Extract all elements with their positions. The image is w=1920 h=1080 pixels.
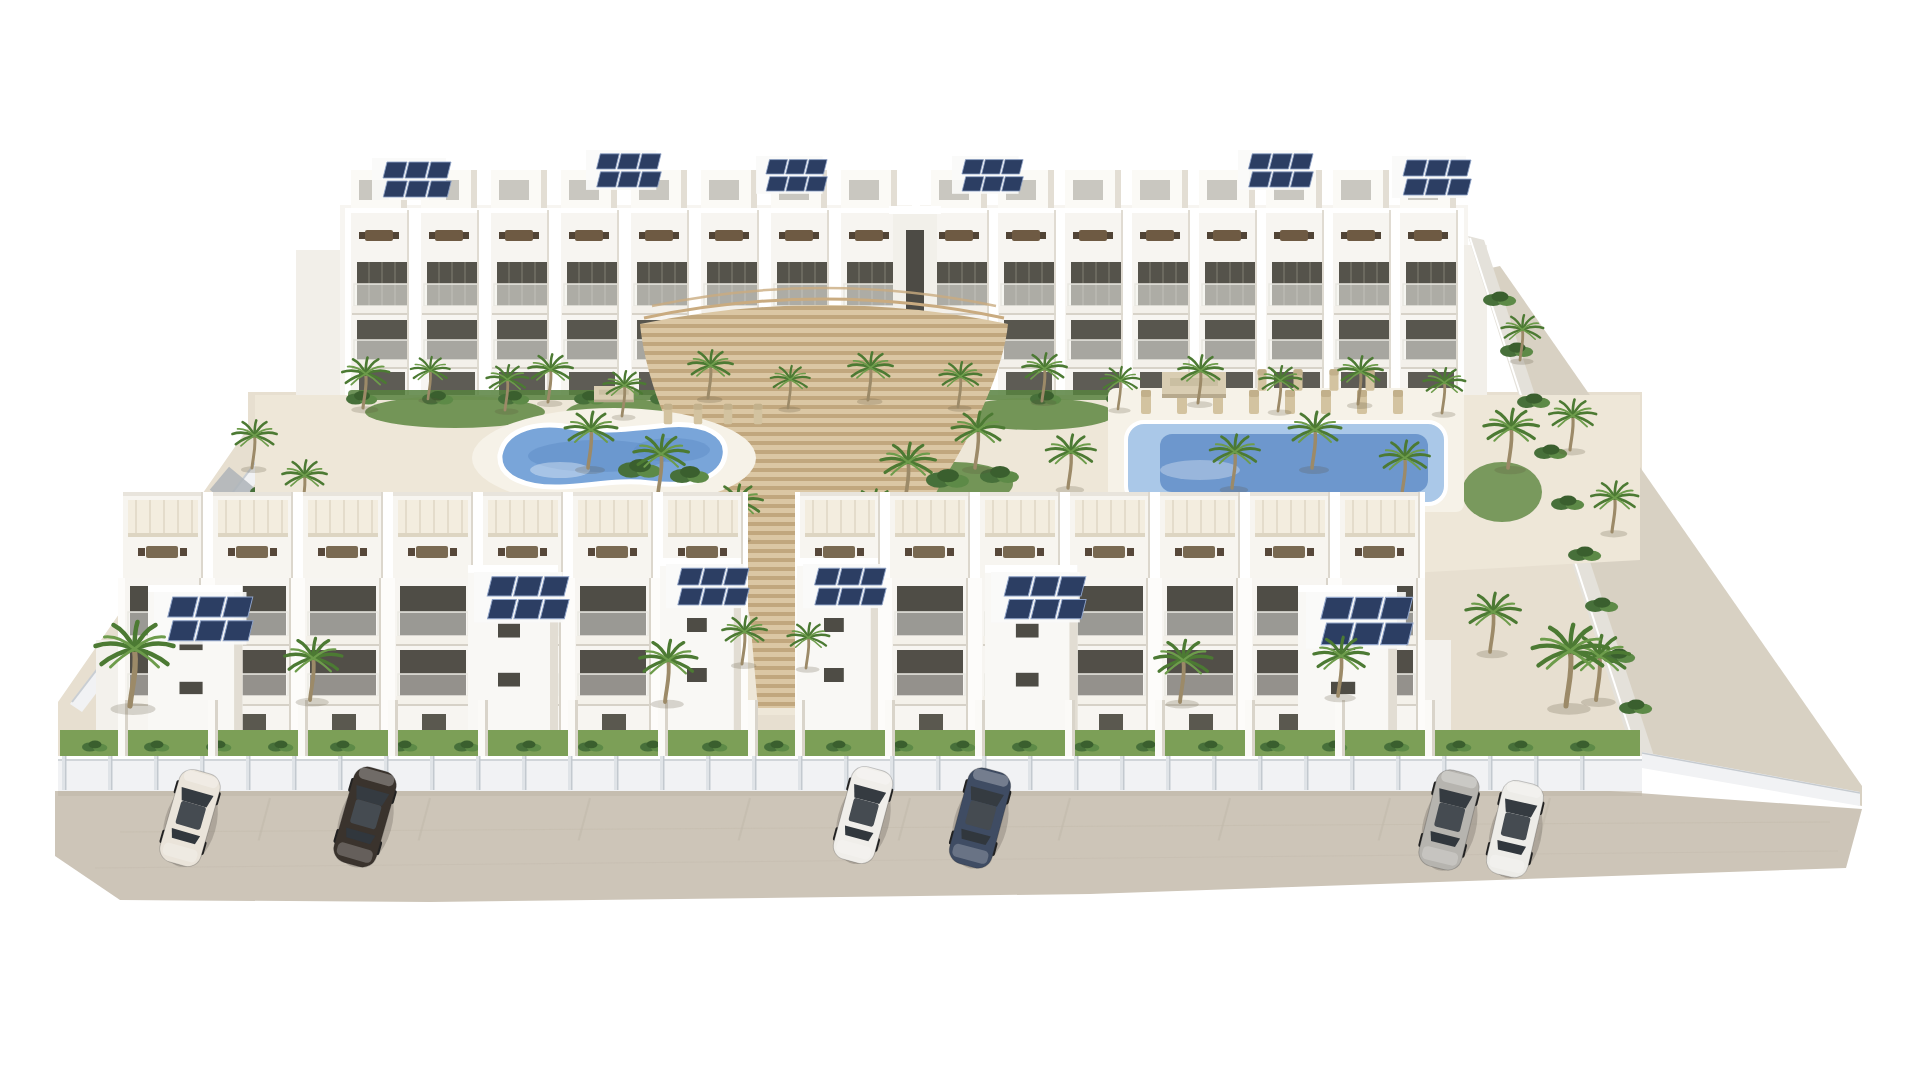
plotwall (1335, 700, 1345, 762)
post (430, 756, 435, 790)
plotwall (298, 700, 308, 762)
post (1396, 756, 1401, 790)
front-unit (568, 492, 658, 748)
plotwall (208, 700, 218, 762)
front-unit (388, 492, 478, 748)
post (1304, 756, 1309, 790)
lounger (1249, 390, 1259, 414)
solar (154, 592, 259, 645)
post (1120, 756, 1125, 790)
solar (666, 564, 754, 608)
post (108, 756, 113, 790)
post (292, 756, 297, 790)
plotwall (748, 700, 758, 762)
solar (1238, 150, 1318, 190)
post (154, 756, 159, 790)
solar (952, 156, 1028, 194)
lounger (1141, 390, 1151, 414)
post (1028, 756, 1033, 790)
post (1166, 756, 1171, 790)
solar (803, 564, 891, 608)
solar (372, 158, 456, 200)
solar (756, 156, 832, 194)
solar (1392, 156, 1476, 198)
post (706, 756, 711, 790)
solar (474, 572, 575, 622)
plotwall (975, 700, 985, 762)
post (1488, 756, 1493, 790)
lounger (1393, 390, 1403, 414)
plotwall (1245, 700, 1255, 762)
post (936, 756, 941, 790)
post (1258, 756, 1263, 790)
lounger (724, 404, 733, 424)
rear-unit (1059, 170, 1129, 408)
plotwall (1155, 700, 1165, 762)
plotwall (1425, 700, 1435, 762)
lounger (1321, 390, 1331, 414)
post (752, 756, 757, 790)
front-unit (1155, 492, 1245, 748)
lounger (694, 404, 703, 424)
residential-complex-render (0, 0, 1920, 1080)
lounger (754, 404, 763, 424)
solar (586, 150, 666, 190)
post (62, 756, 67, 790)
plotwall (568, 700, 578, 762)
post (660, 756, 665, 790)
post (246, 756, 251, 790)
plotwall (885, 700, 895, 762)
post (1580, 756, 1585, 790)
front-unit (298, 492, 388, 748)
solar (991, 572, 1092, 622)
lounger (664, 404, 673, 424)
solar (1306, 592, 1419, 649)
plotwall (478, 700, 488, 762)
post (338, 756, 343, 790)
post (522, 756, 527, 790)
plotwall (388, 700, 398, 762)
plotwall (1065, 700, 1075, 762)
architectural-render-canvas (0, 0, 1920, 1080)
front-unit (885, 492, 975, 748)
plotwall (795, 700, 805, 762)
post (1212, 756, 1217, 790)
rear-unit (345, 170, 415, 408)
post (568, 756, 573, 790)
post (798, 756, 803, 790)
post (1350, 756, 1355, 790)
plotwall (658, 700, 668, 762)
post (476, 756, 481, 790)
post (1074, 756, 1079, 790)
lounger (1330, 369, 1339, 391)
post (614, 756, 619, 790)
